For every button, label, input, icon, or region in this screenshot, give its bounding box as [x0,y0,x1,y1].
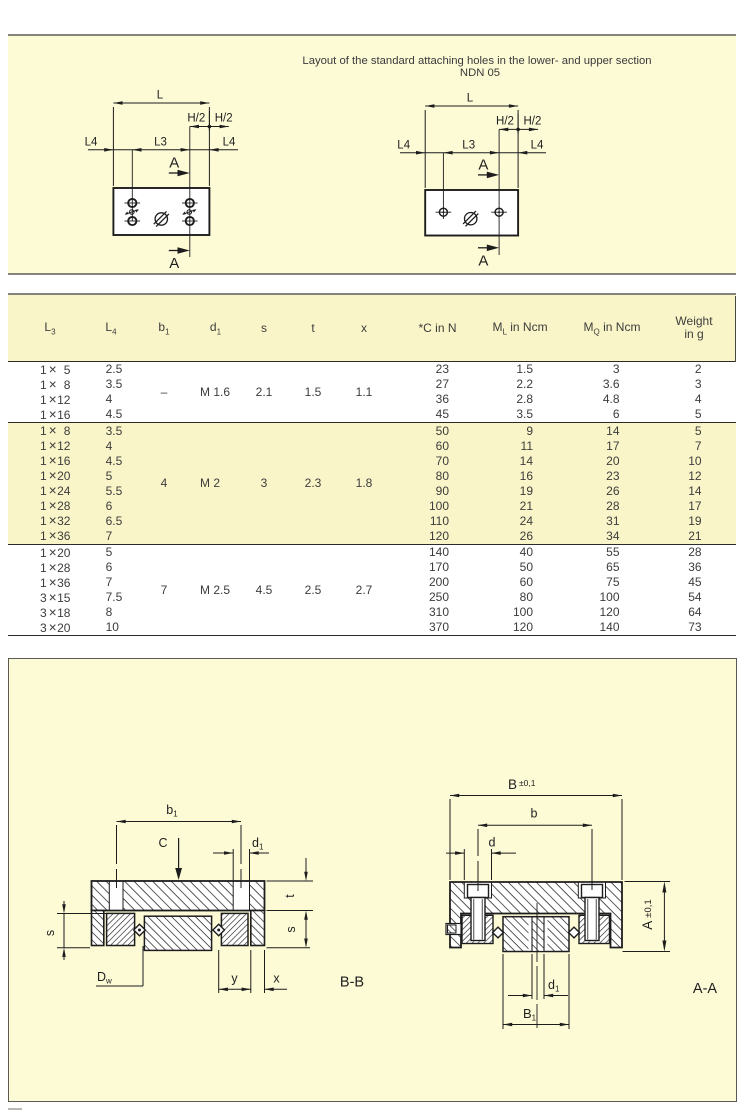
svg-text:y: y [231,972,238,986]
svg-text:H/2: H/2 [215,113,233,125]
svg-text:s: s [43,930,57,936]
svg-text:C: C [158,836,167,850]
svg-text:A-A: A-A [693,981,718,997]
svg-text:d1: d1 [252,836,264,852]
svg-text:L4: L4 [531,140,544,152]
svg-text:B1: B1 [523,1006,537,1023]
svg-text:A: A [478,252,488,269]
svg-text:B: B [508,777,517,792]
svg-text:L: L [157,90,164,102]
svg-text:d: d [489,836,496,850]
svg-text:Dw: Dw [97,970,112,986]
svg-text:H/2: H/2 [496,116,514,128]
svg-text:t: t [283,894,297,898]
svg-text:L3: L3 [462,140,475,152]
svg-text:s: s [284,926,298,932]
svg-text:A: A [169,155,179,172]
svg-text:x: x [273,972,280,986]
svg-text:L4: L4 [397,140,410,152]
svg-text:b1: b1 [166,803,178,819]
svg-text:A ±0,1: A ±0,1 [640,899,655,929]
svg-text:H/2: H/2 [187,113,205,125]
svg-text:L3: L3 [154,137,167,149]
svg-text:±0,1: ±0,1 [519,778,536,788]
svg-text:B-B: B-B [340,975,364,991]
svg-text:H/2: H/2 [523,116,541,128]
svg-text:L4: L4 [85,137,98,149]
svg-text:b: b [531,807,538,821]
svg-text:d1: d1 [548,978,560,994]
svg-text:L: L [467,93,474,105]
svg-text:L4: L4 [223,137,236,149]
svg-text:A: A [478,156,488,173]
svg-text:A: A [169,255,179,272]
